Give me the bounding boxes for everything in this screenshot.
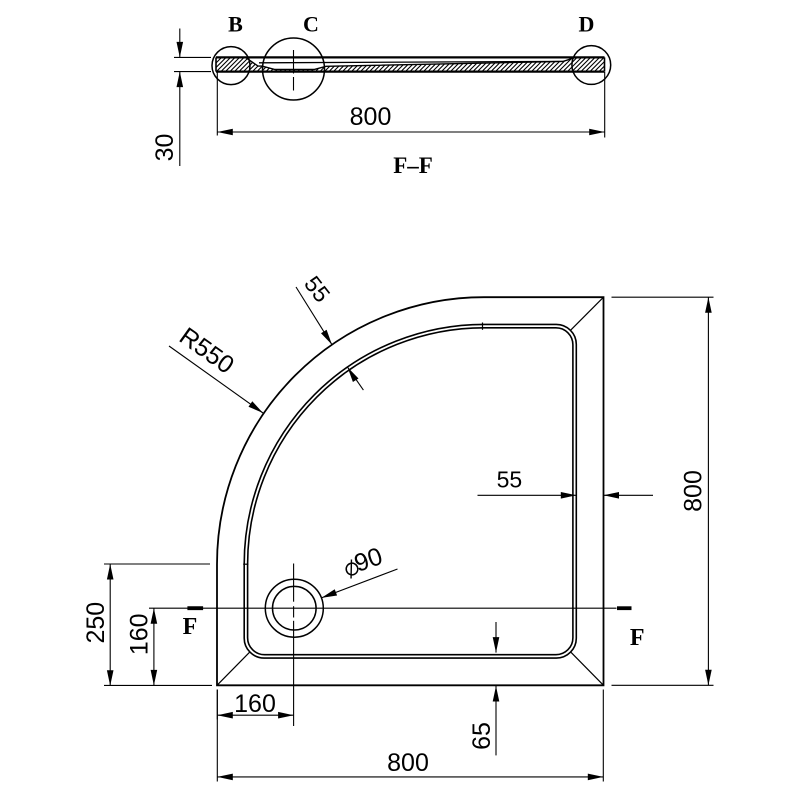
svg-text:160: 160 [234,690,276,718]
svg-text:F–F: F–F [393,153,433,178]
svg-text:250: 250 [82,602,110,644]
svg-text:65: 65 [468,722,496,750]
svg-text:55: 55 [497,467,523,493]
svg-text:D: D [579,12,595,37]
svg-text:800: 800 [680,470,708,512]
svg-text:800: 800 [350,103,392,131]
svg-text:F: F [630,625,645,651]
svg-text:30: 30 [151,134,179,162]
svg-text:B: B [228,12,243,37]
svg-text:C: C [303,12,319,37]
svg-text:160: 160 [126,613,154,655]
svg-text:800: 800 [387,749,429,777]
svg-text:F: F [183,614,198,640]
